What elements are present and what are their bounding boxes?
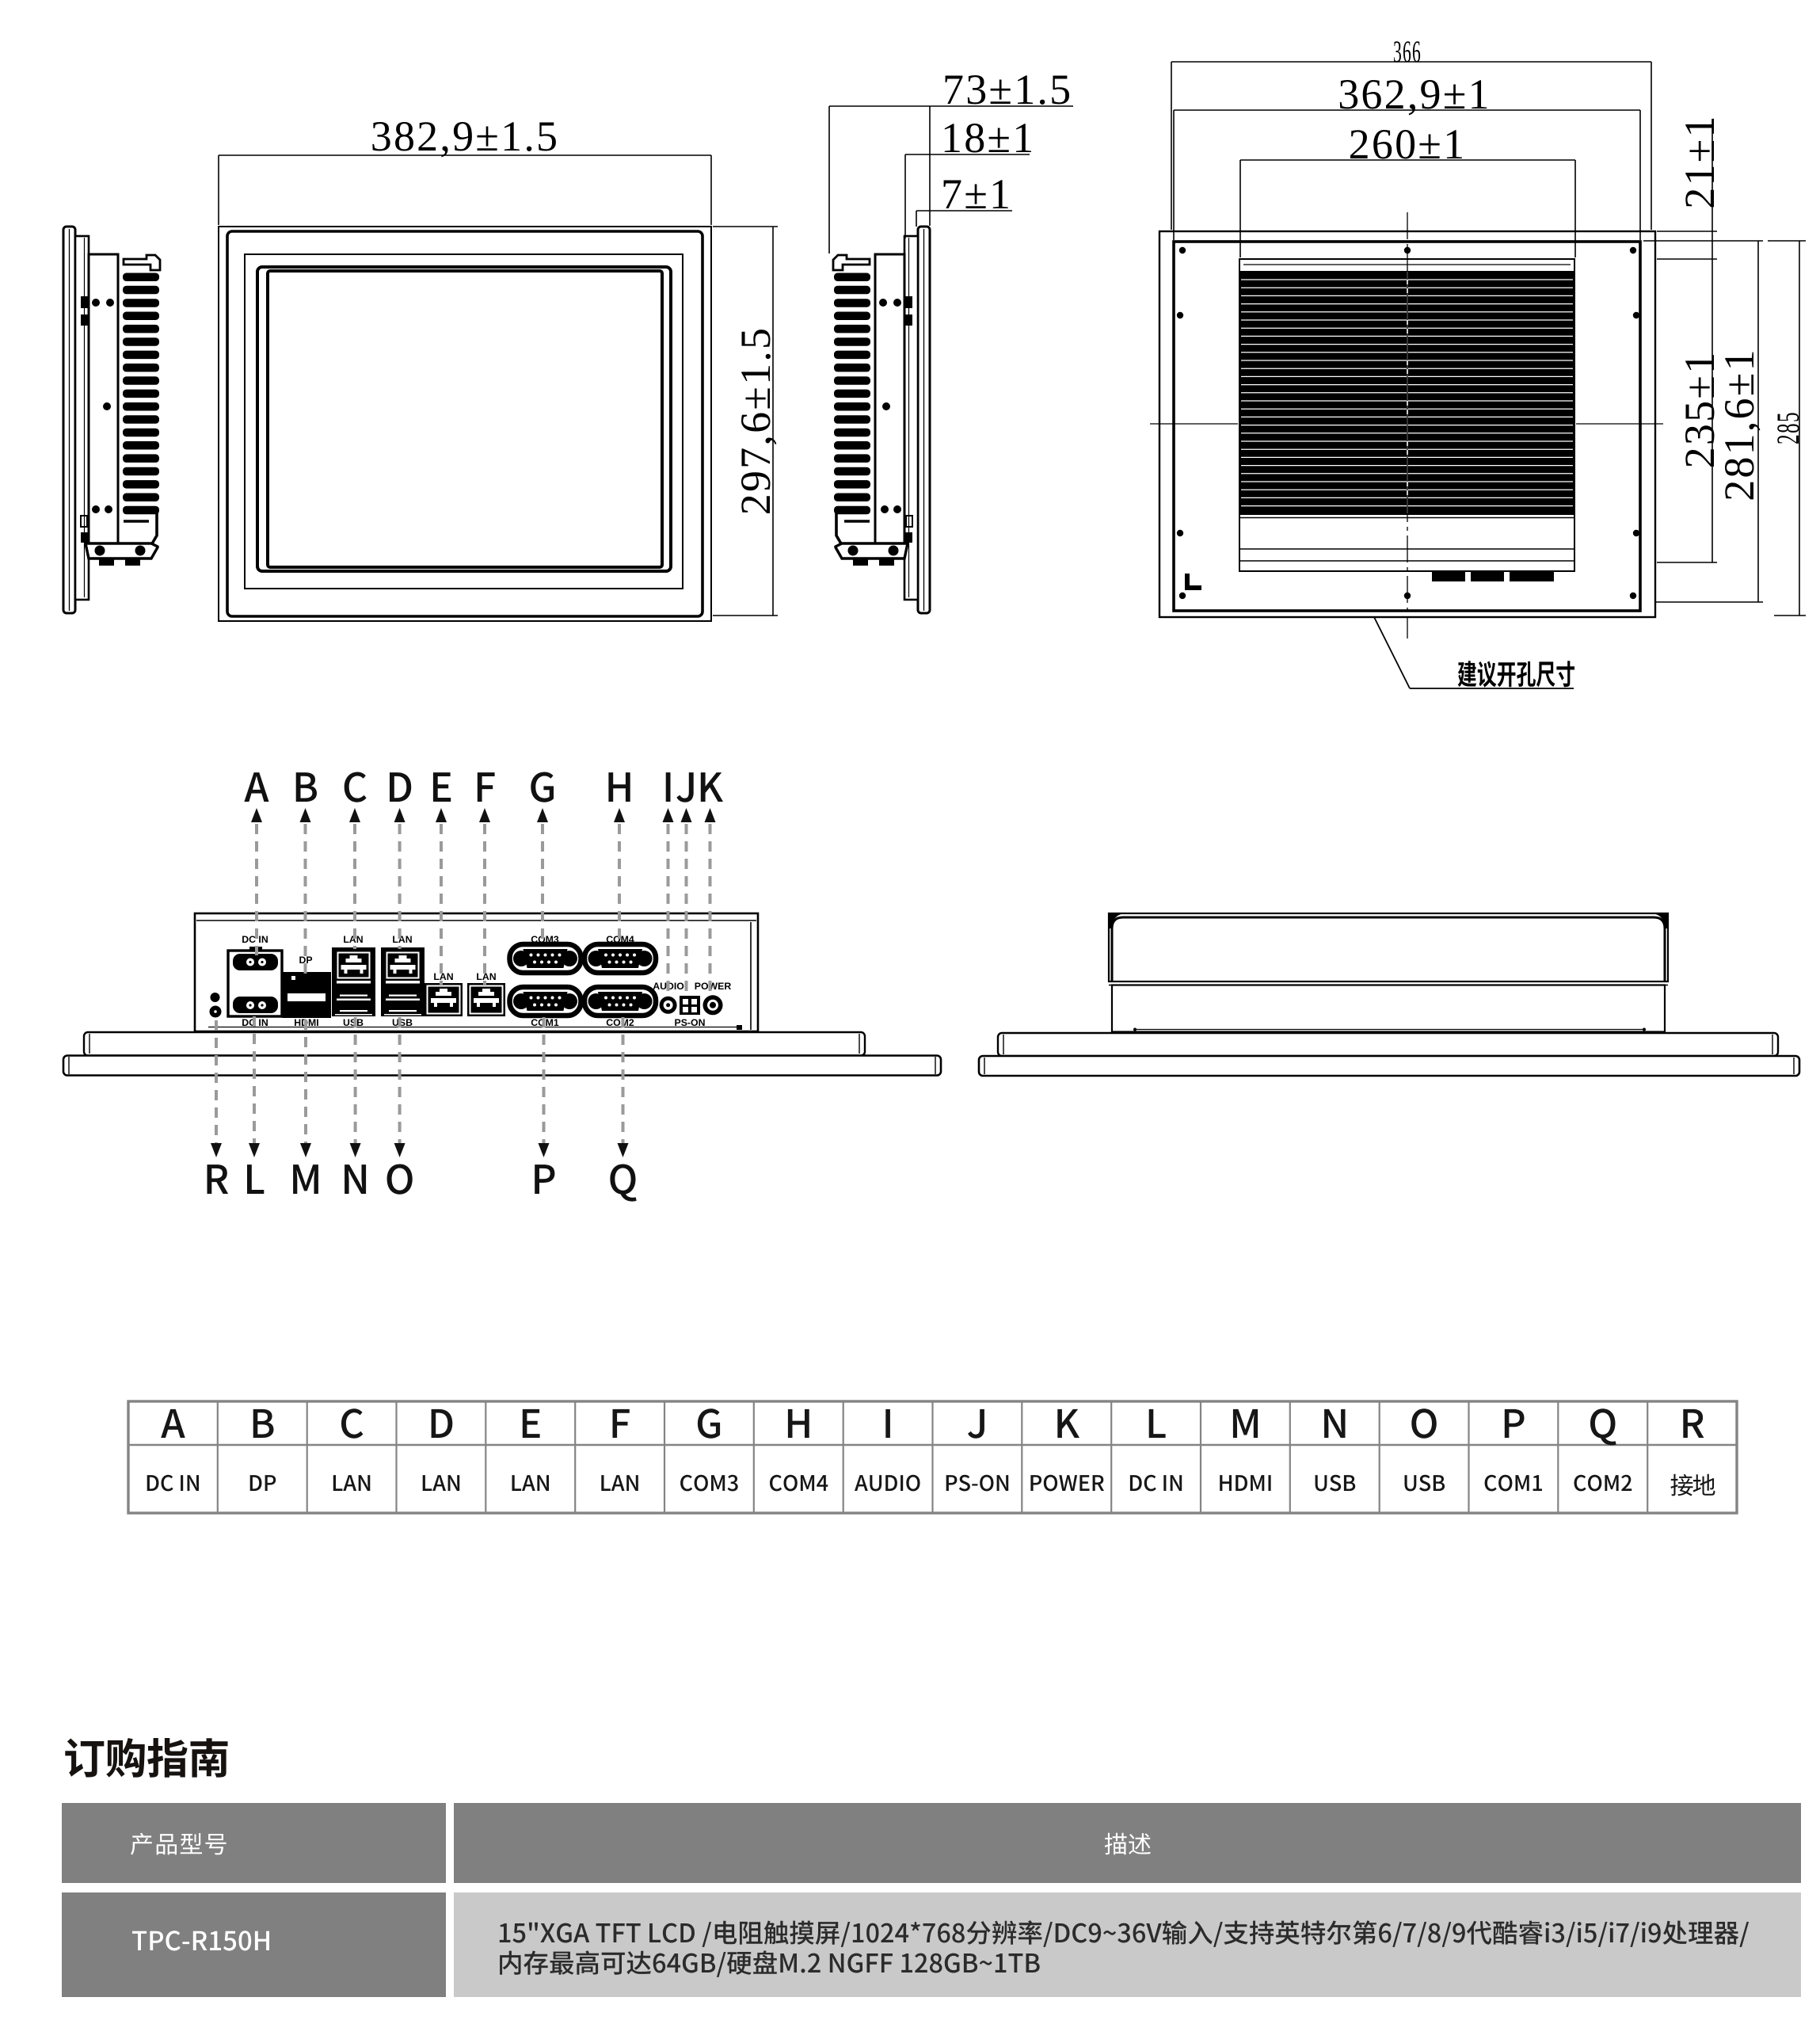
svg-text:COM2: COM2 bbox=[606, 1017, 634, 1028]
svg-text:73±1.5: 73±1.5 bbox=[942, 66, 1072, 113]
svg-text:281,6±1: 281,6±1 bbox=[1715, 348, 1763, 501]
svg-text:18±1: 18±1 bbox=[941, 114, 1035, 162]
svg-text:LAN: LAN bbox=[476, 971, 496, 982]
svg-text:POWER: POWER bbox=[695, 981, 732, 992]
svg-text:382,9±1.5: 382,9±1.5 bbox=[371, 112, 559, 160]
svg-text:297,6±1.5: 297,6±1.5 bbox=[732, 326, 779, 515]
svg-text:COM3: COM3 bbox=[531, 934, 559, 945]
svg-text:USB: USB bbox=[392, 1017, 413, 1028]
svg-text:PS-ON: PS-ON bbox=[675, 1017, 706, 1028]
svg-text:260±1: 260±1 bbox=[1349, 120, 1467, 168]
svg-text:LAN: LAN bbox=[433, 971, 453, 982]
svg-text:7±1: 7±1 bbox=[941, 170, 1012, 218]
svg-text:21±1: 21±1 bbox=[1676, 114, 1723, 208]
svg-text:LAN: LAN bbox=[392, 934, 412, 945]
svg-text:USB: USB bbox=[343, 1017, 364, 1028]
svg-text:362,9±1: 362,9±1 bbox=[1338, 71, 1491, 118]
svg-text:285: 285 bbox=[1770, 411, 1806, 444]
svg-text:366: 366 bbox=[1393, 35, 1422, 69]
